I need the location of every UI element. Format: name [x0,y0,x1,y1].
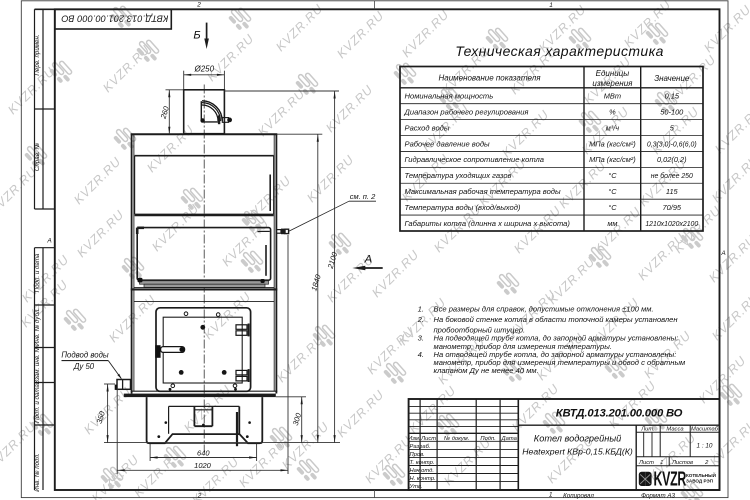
svg-text:Лист: Лист [420,436,436,442]
svg-text:0,15: 0,15 [665,92,680,101]
svg-text:1: 1 [549,2,553,9]
svg-text:Котел водогрейный: Котел водогрейный [534,433,621,443]
svg-text:Подп.: Подп. [480,436,495,442]
svg-text:1 : 10: 1 : 10 [697,442,713,449]
svg-text:Дата: Дата [501,436,518,442]
svg-text:Рабочее давление воды: Рабочее давление воды [405,139,491,148]
svg-text:КВТД.013.201.00.000 ВО: КВТД.013.201.00.000 ВО [61,14,168,24]
svg-text:°С: °С [608,203,617,212]
svg-text:%: % [609,108,616,117]
svg-text:На боковой стенке котла в обла: На боковой стенке котла в области топочн… [434,315,679,324]
svg-text:мм: мм [607,219,617,228]
svg-text:КВТД.013.201.00.000 ВО: КВТД.013.201.00.000 ВО [556,408,683,420]
svg-text:Разраб.: Разраб. [410,444,431,450]
svg-text:Масштаб: Масштаб [691,427,719,433]
svg-text:2: 2 [196,2,201,9]
svg-text:Копировал: Копировал [563,492,594,499]
svg-text:Техническая характеристика: Техническая характеристика [455,43,664,59]
svg-text:70/95: 70/95 [663,203,682,212]
svg-text:Справ. №: Справ. № [34,143,41,171]
svg-text:А: А [46,238,51,245]
svg-text:А: А [364,254,372,266]
svg-text:А: А [720,250,725,257]
svg-text:Н. контр.: Н. контр. [410,476,436,482]
svg-text:2: 2 [197,492,202,499]
svg-text:Наименование показателя: Наименование показателя [438,74,541,83]
svg-text:4.: 4. [418,350,424,359]
svg-text:не более 250: не более 250 [651,172,693,180]
svg-text:Ø250: Ø250 [194,64,215,73]
svg-text:Утв.: Утв. [409,484,423,490]
svg-text:640: 640 [197,448,210,457]
svg-text:Подп. и дата: Подп. и дата [34,384,41,423]
svg-text:Значение: Значение [654,74,690,83]
svg-text:ЗАВОД РЭП: ЗАВОД РЭП [686,479,713,484]
svg-text:№ докум.: № докум. [444,436,470,442]
svg-text:Взам. инв. №: Взам. инв. № [34,346,41,385]
svg-text:см. п. 2: см. п. 2 [350,192,376,201]
svg-text:измерения: измерения [592,79,633,88]
svg-text:Гидравлическое сопротивление к: Гидравлическое сопротивление котла [405,155,545,164]
svg-text:Температура воды (вход/выход): Температура воды (вход/выход) [405,203,521,212]
svg-text:Все размеры для справок, допус: Все размеры для справок, допустимые откл… [434,305,654,314]
svg-text:Пров.: Пров. [410,452,425,458]
svg-text:Изм.: Изм. [408,436,420,442]
svg-text:Лит.: Лит. [640,427,655,433]
svg-text:50-100: 50-100 [660,108,684,117]
svg-text:Инв. № дубл.: Инв. № дубл. [34,308,41,346]
svg-text:клапаном Ду не менее 40 мм.: клапаном Ду не менее 40 мм. [434,366,539,375]
svg-text:Единицы: Единицы [596,69,630,78]
svg-text:Подп. и дата: Подп. и дата [34,253,41,292]
svg-text:Ду 50: Ду 50 [73,362,95,371]
svg-text:3.: 3. [418,334,424,343]
svg-text:Heatexpert КВр-0,15.КБД(К): Heatexpert КВр-0,15.КБД(К) [522,447,633,457]
svg-text:Температура уходящих газов: Температура уходящих газов [405,171,512,180]
svg-text:Нач.отд.: Нач.отд. [410,468,434,474]
svg-text:1: 1 [660,460,663,466]
svg-text:Т. контр.: Т. контр. [410,460,435,466]
svg-text:Диапазон рабочего регулировани: Диапазон рабочего регулирования [404,108,529,117]
svg-text:Максимальная рабочая температу: Максимальная рабочая температура воды [405,187,562,196]
svg-text:КОТЕЛЬНЫЙ: КОТЕЛЬНЫЙ [686,471,716,478]
svg-text:МПа (кгс/см²): МПа (кгс/см²) [589,139,636,148]
svg-text:115: 115 [666,187,679,196]
svg-text:Номинальная мощность: Номинальная мощность [405,92,494,101]
svg-text:0,3(3,0)-0,6(6,0): 0,3(3,0)-0,6(6,0) [647,141,697,148]
svg-text:МВт: МВт [604,92,621,101]
svg-text:Масса: Масса [666,427,684,433]
svg-text:Габариты котла (длинна х ширин: Габариты котла (длинна х ширина х высота… [405,219,571,228]
svg-text:°С: °С [608,187,617,196]
svg-text:Листов: Листов [671,460,693,466]
svg-text:1210х1020х2100: 1210х1020х2100 [645,221,698,228]
svg-text:Расход воды: Расход воды [405,123,450,132]
svg-text:0,02(0,2): 0,02(0,2) [657,155,687,164]
svg-text:м³/ч: м³/ч [606,123,620,132]
svg-text:МПа (кгс/см²): МПа (кгс/см²) [589,155,636,164]
svg-text:°С: °С [608,171,617,180]
svg-text:1.: 1. [418,305,424,314]
svg-text:Б: Б [193,29,200,41]
svg-text:1: 1 [549,492,553,499]
svg-text:KVZR: KVZR [654,467,687,490]
svg-text:Формат А3: Формат А3 [641,492,675,499]
svg-text:Перв. примен.: Перв. примен. [34,34,41,75]
svg-text:Лист: Лист [638,460,654,466]
svg-text:2.: 2. [417,315,424,324]
svg-text:1020: 1020 [194,461,212,470]
svg-text:Инв. № подл.: Инв. № подл. [34,453,41,491]
svg-text:Подвод воды: Подвод воды [61,351,109,360]
